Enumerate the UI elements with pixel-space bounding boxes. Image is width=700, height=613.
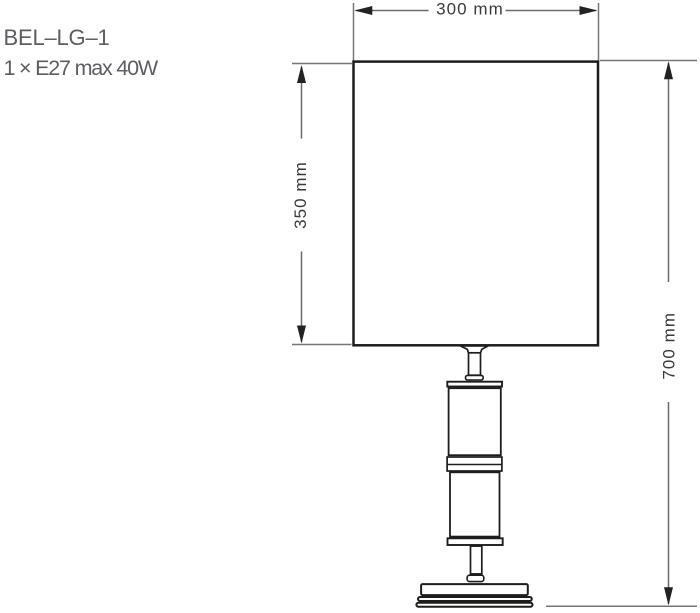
svg-text:300 mm: 300 mm [436,0,504,19]
svg-text:350 mm: 350 mm [291,161,310,229]
svg-text:BEL–LG–1: BEL–LG–1 [4,25,110,50]
svg-text:700 mm: 700 mm [659,312,678,380]
svg-text:1 × E27 max 40W: 1 × E27 max 40W [4,56,159,80]
